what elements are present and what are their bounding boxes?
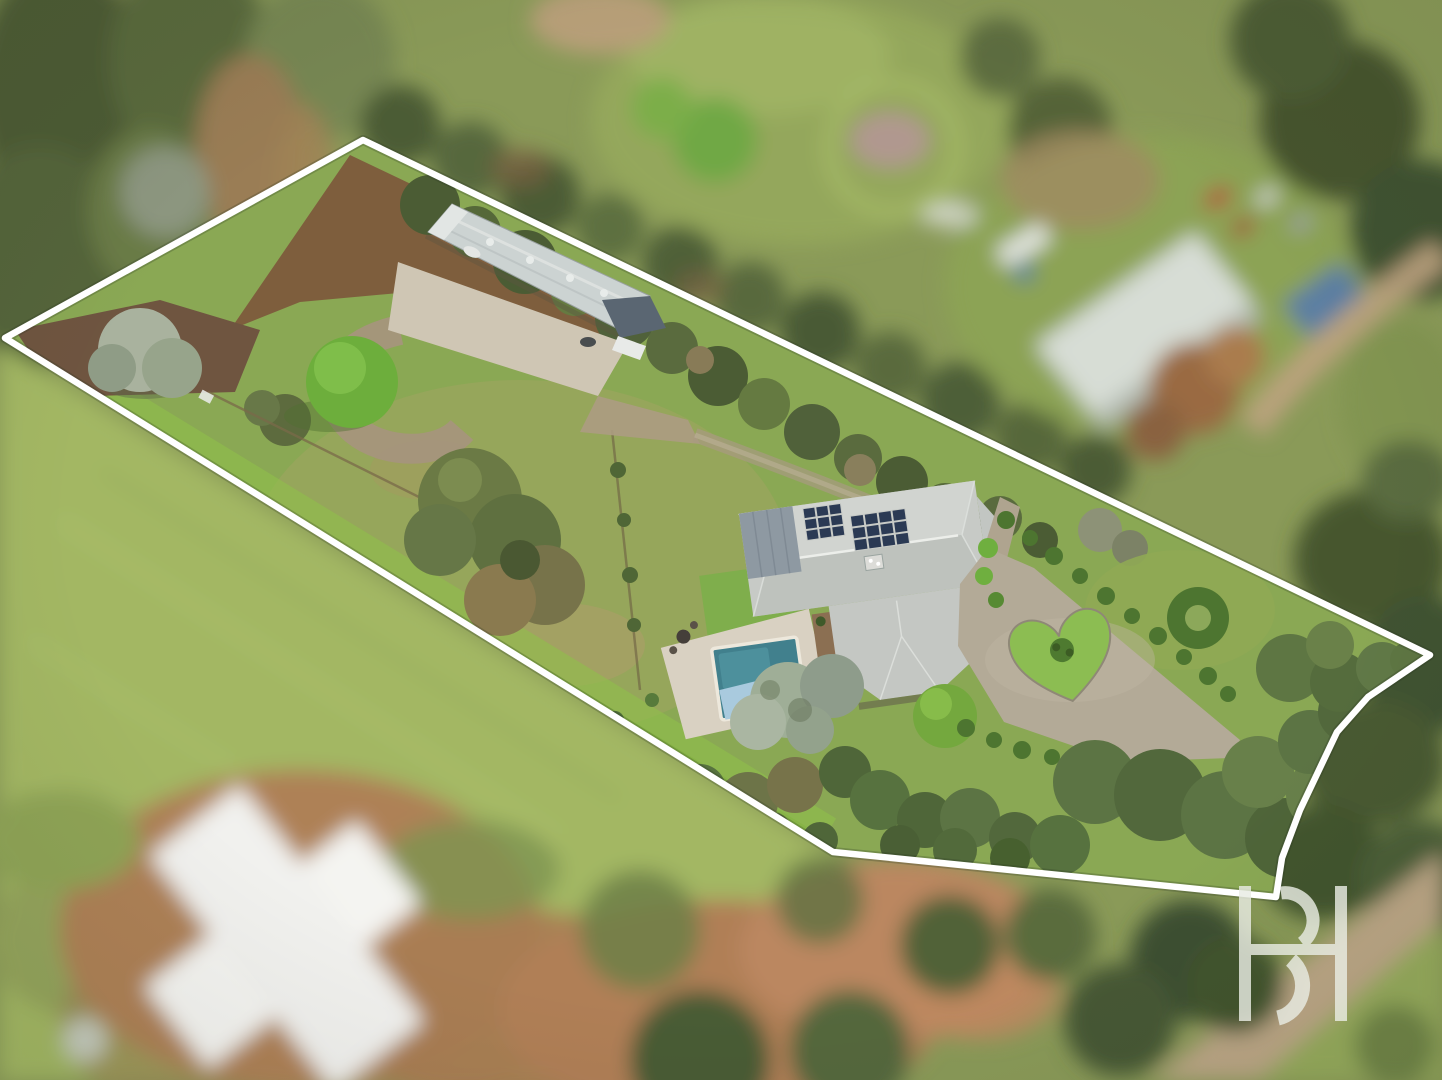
logo-b-stem	[1239, 886, 1251, 1021]
vignette-overlay	[0, 0, 1442, 1080]
logo-h-stem	[1335, 886, 1347, 1021]
aerial-photo	[0, 0, 1442, 1080]
logo-crossbar	[1251, 944, 1335, 955]
aerial-photo-canvas	[0, 0, 1442, 1080]
